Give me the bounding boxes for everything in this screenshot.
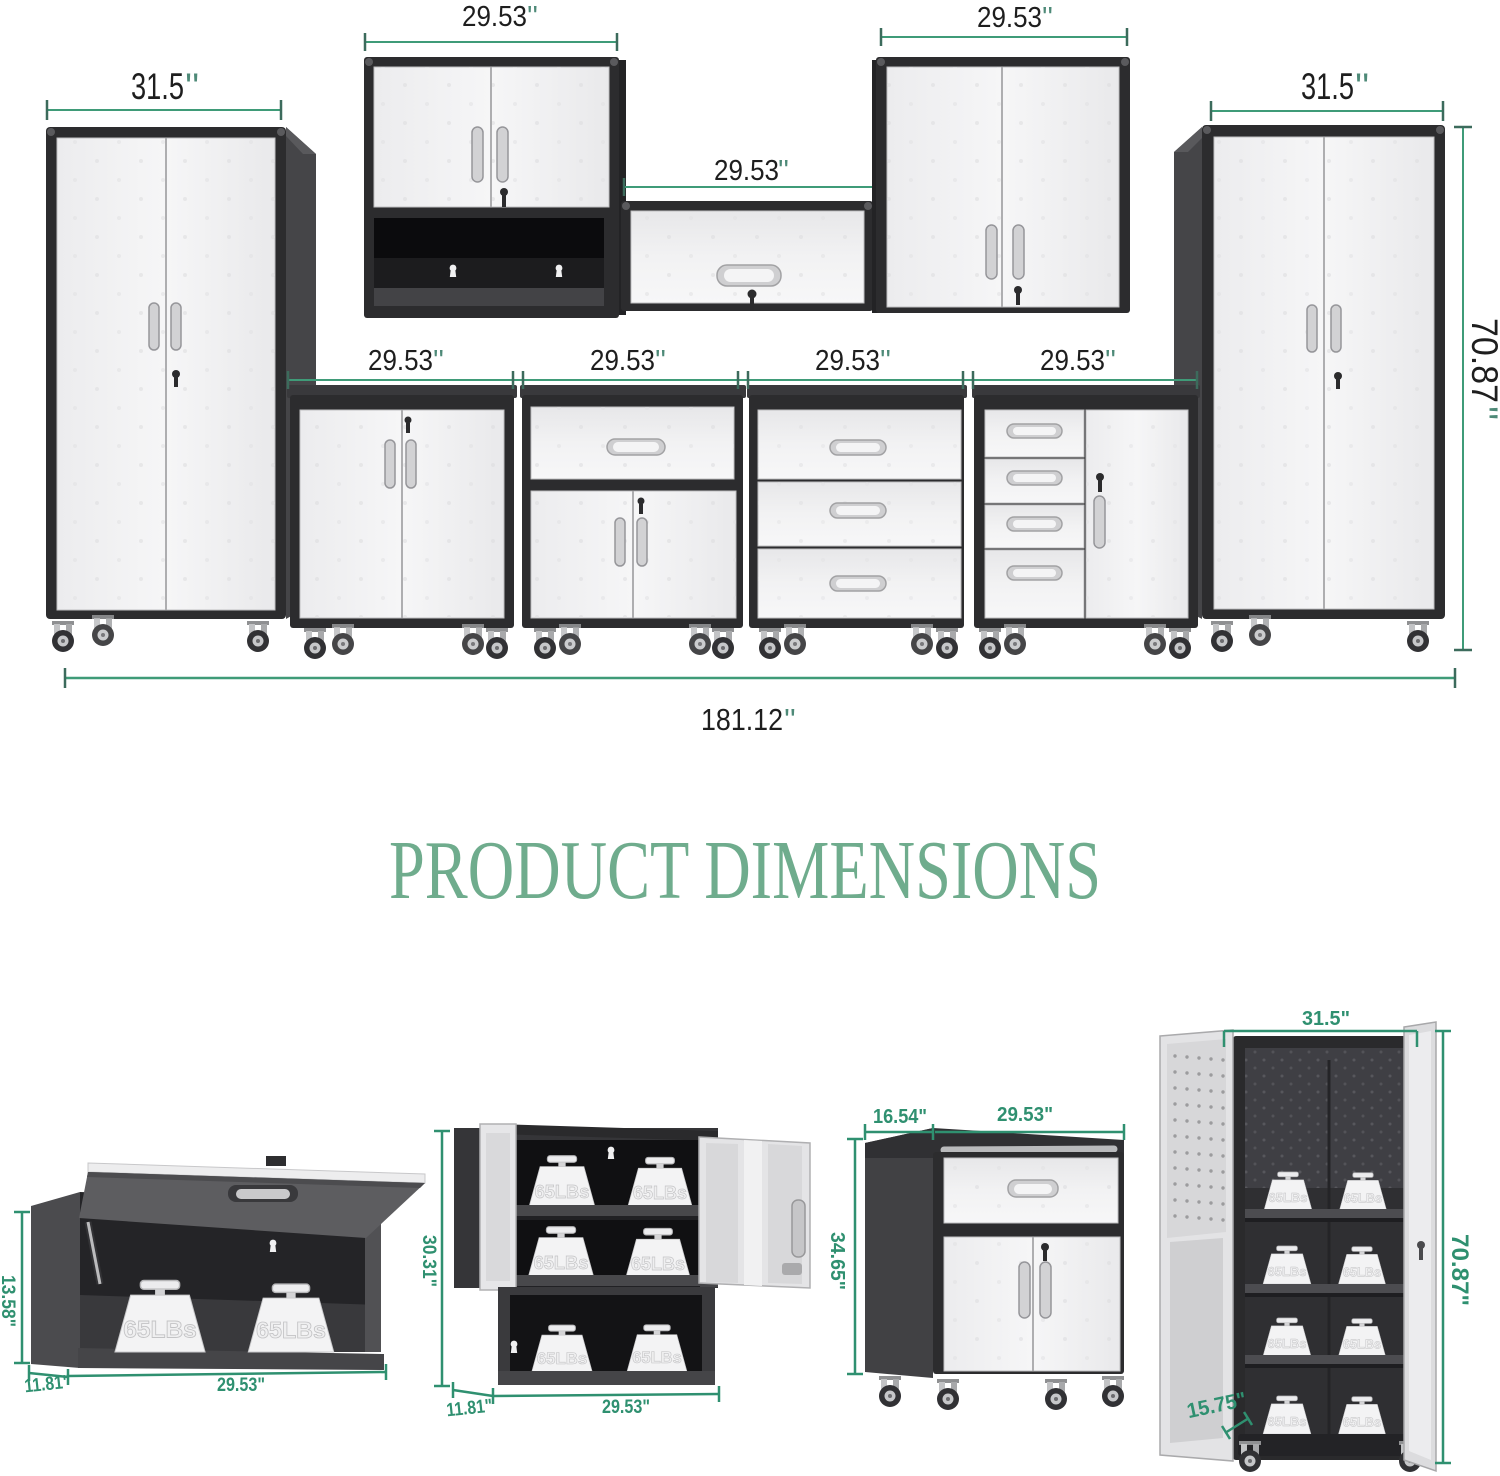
svg-text:'': '' [778,155,789,187]
svg-text:'': '' [880,345,891,377]
svg-text:'': '' [433,345,444,377]
svg-text:70.87: 70.87 [1464,318,1500,403]
svg-text:'': '' [1042,2,1053,34]
svg-text:PRODUCT DIMENSIONS: PRODUCT DIMENSIONS [389,824,1101,917]
svg-text:29.53: 29.53 [1040,345,1105,377]
svg-text:29.53: 29.53 [462,1,527,33]
svg-text:'': '' [527,1,538,33]
svg-text:181.12: 181.12 [701,702,783,737]
svg-text:34.65": 34.65" [826,1232,848,1290]
svg-text:29.53: 29.53 [977,2,1042,34]
svg-text:29.53: 29.53 [590,345,655,377]
svg-text:'': '' [1355,66,1369,107]
svg-text:29.53: 29.53 [815,345,880,377]
svg-text:29.53: 29.53 [368,345,433,377]
svg-text:29.53": 29.53" [997,1104,1053,1126]
svg-text:'': '' [784,702,796,737]
svg-text:29.53": 29.53" [217,1375,265,1396]
svg-text:70.87": 70.87" [1446,1234,1473,1306]
svg-text:'': '' [655,345,666,377]
svg-text:'': '' [1105,345,1116,377]
svg-text:29.53": 29.53" [602,1397,650,1418]
svg-text:29.53: 29.53 [714,155,779,187]
svg-text:'': '' [1464,406,1500,420]
svg-text:31.5: 31.5 [131,66,184,107]
svg-text:16.54": 16.54" [873,1106,927,1128]
svg-text:13.58": 13.58" [0,1275,18,1327]
svg-text:31.5": 31.5" [1302,1008,1350,1030]
svg-text:31.5: 31.5 [1301,66,1354,107]
svg-text:'': '' [185,66,199,107]
svg-text:30.31": 30.31" [418,1235,439,1287]
